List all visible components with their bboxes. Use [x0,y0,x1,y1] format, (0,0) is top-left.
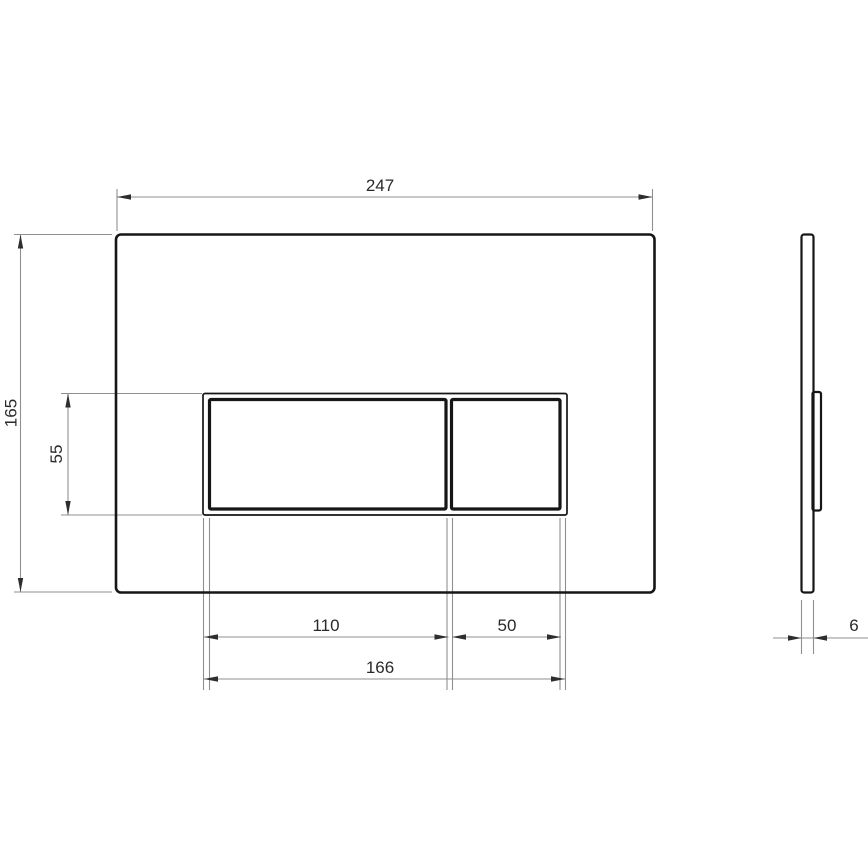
side-view [802,235,822,593]
large-flush-button [210,400,447,510]
arrowhead-left-icon [204,634,218,639]
plate-outline [116,235,655,593]
arrowhead-up-icon [18,235,23,249]
thickness-dimension-label: 6 [849,616,858,635]
technical-drawing-canvas: 247 165 55 110 50 1 [0,0,868,868]
plate-height-dimension-label: 165 [2,399,21,427]
arrowhead-left-icon [117,194,131,199]
arrowhead-right-icon [547,634,561,639]
plate-width-dimension-label: 247 [366,176,394,195]
button-panel-frame [203,394,567,516]
arrowhead-right-icon [788,635,802,640]
small-button-width-dimension-label: 50 [498,616,517,635]
arrowhead-right-icon [435,634,449,639]
front-view [116,235,655,593]
arrowhead-down-icon [18,578,23,592]
small-flush-button [452,400,561,510]
arrowhead-right-icon [551,676,565,681]
arrowhead-left-icon [814,635,828,640]
arrowhead-right-icon [639,194,653,199]
arrowhead-left-icon [452,634,466,639]
arrowhead-up-icon [65,394,70,408]
dimension-layer: 247 165 55 110 50 1 [2,176,868,690]
arrowhead-left-icon [204,676,218,681]
arrowhead-down-icon [65,501,70,515]
panel-height-dimension-label: 55 [47,445,66,464]
large-button-width-dimension-label: 110 [312,616,339,635]
panel-width-dimension-label: 166 [366,658,394,677]
flush-plate-drawing: 247 165 55 110 50 1 [0,0,868,868]
